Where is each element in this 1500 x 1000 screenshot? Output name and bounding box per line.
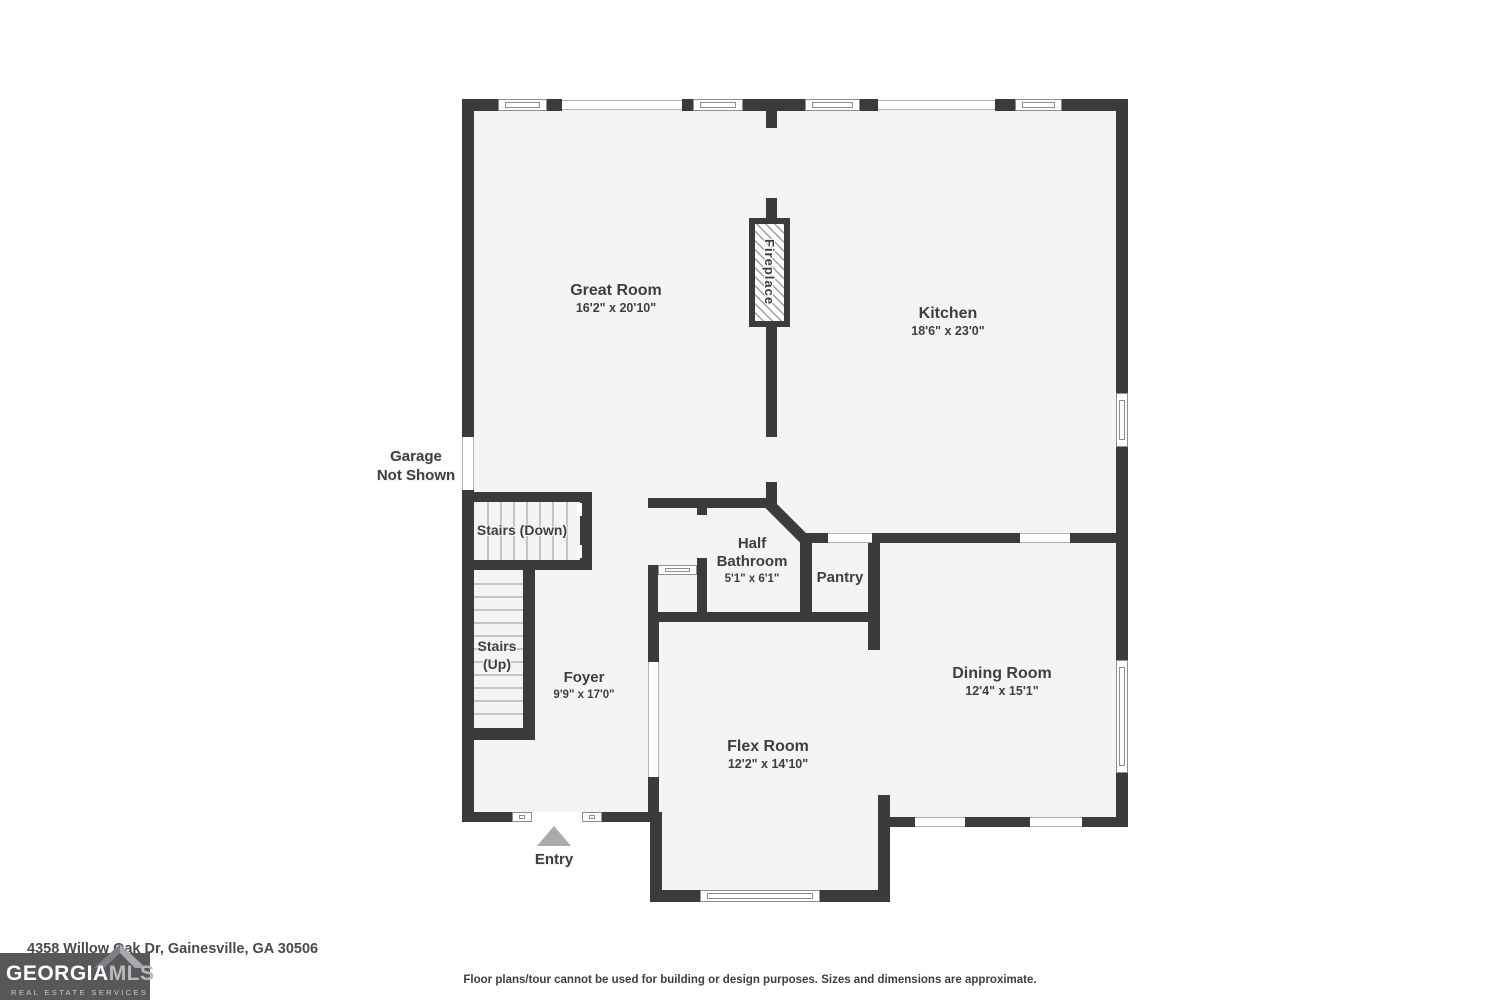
window-opening — [562, 100, 682, 110]
window — [700, 890, 820, 902]
cased-opening — [1020, 533, 1070, 543]
wall-segment — [1116, 99, 1128, 393]
stair-tread — [474, 687, 523, 689]
room-label-foyer: Foyer 9'9" x 17'0" — [524, 668, 644, 703]
wall-segment — [872, 533, 1020, 543]
room-dimensions: 16'2" x 20'10" — [516, 300, 716, 316]
entry-arrow-icon — [537, 826, 571, 846]
garage-note-line2: Not Shown — [356, 466, 476, 485]
wall-segment — [995, 99, 1015, 111]
entry-door-opening — [532, 812, 582, 822]
window — [1116, 393, 1128, 447]
room-name: Half Bathroom — [712, 535, 792, 571]
room-label-pantry: Pantry — [790, 568, 890, 587]
room-label-dining-room: Dining Room 12'4" x 15'1" — [902, 664, 1102, 699]
entry-text: Entry — [504, 850, 604, 869]
garage-note: Garage Not Shown — [356, 447, 476, 485]
stair-tread — [474, 713, 523, 715]
entry-sidelite-window — [582, 812, 602, 822]
entry-label: Entry — [504, 850, 604, 869]
stair-tread — [474, 596, 523, 598]
stair-tread — [474, 609, 523, 611]
room-label-flex-room: Flex Room 12'2" x 14'10" — [668, 737, 868, 772]
window — [693, 99, 743, 111]
window-opening — [878, 100, 995, 110]
window-opening — [915, 817, 965, 827]
wall-segment — [766, 327, 777, 437]
stairs-landing-notch — [577, 503, 582, 516]
room-name: Kitchen — [848, 304, 1048, 323]
floor-flex-extension — [656, 817, 884, 896]
wall-segment — [820, 890, 890, 902]
fireplace-label: Fireplace — [762, 239, 777, 305]
stair-tread — [474, 700, 523, 702]
closet-cased-opening — [658, 565, 697, 575]
room-name: Foyer — [524, 668, 644, 687]
stairs-down-bottom-wall — [462, 560, 592, 570]
wall-segment — [648, 498, 777, 508]
wall-segment — [682, 99, 693, 111]
floor-main — [468, 105, 1122, 817]
window-opening — [1030, 817, 1082, 827]
room-dimensions: 9'9" x 17'0" — [524, 687, 644, 703]
room-dimensions: 12'2" x 14'10" — [668, 756, 868, 772]
cased-opening — [648, 662, 659, 777]
room-label-half-bathroom: Half Bathroom 5'1" x 6'1" — [712, 535, 792, 587]
pantry-door-opening — [828, 533, 872, 543]
wall-segment — [743, 99, 805, 111]
disclaimer-text: Floor plans/tour cannot be used for buil… — [0, 974, 1500, 986]
room-name: Great Room — [516, 281, 716, 300]
logo-tagline: REAL ESTATE SERVICES — [11, 988, 148, 997]
room-dimensions: 18'6" x 23'0" — [848, 323, 1048, 339]
wall-segment — [462, 812, 512, 822]
room-label-great-room: Great Room 16'2" x 20'10" — [516, 281, 716, 316]
wall-segment — [766, 198, 777, 218]
wall-segment — [648, 613, 659, 662]
wall-segment — [1116, 447, 1128, 660]
wall-segment — [462, 99, 474, 437]
entry-sidelite-window — [512, 812, 532, 822]
stairs-up-bottom-wall — [462, 728, 535, 740]
stairs-down-top-wall — [462, 492, 592, 502]
room-name: Flex Room — [668, 737, 868, 756]
floor-plan-page: Fireplace Great Room 16'2" x 20'10" Kitc… — [0, 0, 1500, 1000]
logo-wordmark: GEORGIAMLS — [6, 962, 155, 986]
wall-segment — [965, 817, 1030, 827]
room-name: Pantry — [790, 568, 890, 587]
room-dimensions: 12'4" x 15'1" — [902, 683, 1102, 699]
stair-tread — [474, 583, 523, 585]
stairs-up-label: Stairs (Up) — [467, 637, 527, 673]
wall-segment — [766, 111, 777, 128]
stairs-down-label: Stairs (Down) — [464, 521, 580, 539]
logo-brand-secondary: MLS — [109, 962, 155, 985]
wall-segment — [800, 533, 828, 543]
window — [1015, 99, 1062, 111]
garage-note-line1: Garage — [356, 447, 476, 466]
wall-segment — [648, 612, 880, 622]
wall-segment — [650, 890, 700, 902]
stair-tread — [474, 622, 523, 624]
room-name: Dining Room — [902, 664, 1102, 683]
stair-tread — [474, 674, 523, 676]
wall-segment — [1082, 817, 1128, 827]
stairs-up-text: Stairs (Up) — [467, 637, 527, 673]
wall-segment — [697, 508, 707, 515]
wall-segment — [648, 777, 659, 822]
room-label-kitchen: Kitchen 18'6" x 23'0" — [848, 304, 1048, 339]
wall-segment — [547, 99, 562, 111]
window — [805, 99, 860, 111]
wall-segment — [878, 795, 890, 902]
fireplace: Fireplace — [749, 218, 790, 327]
wall-segment — [650, 812, 662, 902]
logo-brand-primary: GEORGIA — [6, 962, 109, 985]
wall-segment — [890, 817, 915, 827]
room-dimensions: 5'1" x 6'1" — [712, 571, 792, 587]
wall-segment — [1070, 533, 1128, 543]
window — [498, 99, 547, 111]
georgia-mls-logo: GEORGIAMLS REAL ESTATE SERVICES — [0, 953, 150, 1000]
stairs-landing-notch — [577, 545, 582, 558]
window — [1116, 660, 1128, 773]
stairs-down-text: Stairs (Down) — [464, 521, 580, 539]
wall-segment — [860, 99, 878, 111]
wall-segment — [868, 533, 880, 650]
